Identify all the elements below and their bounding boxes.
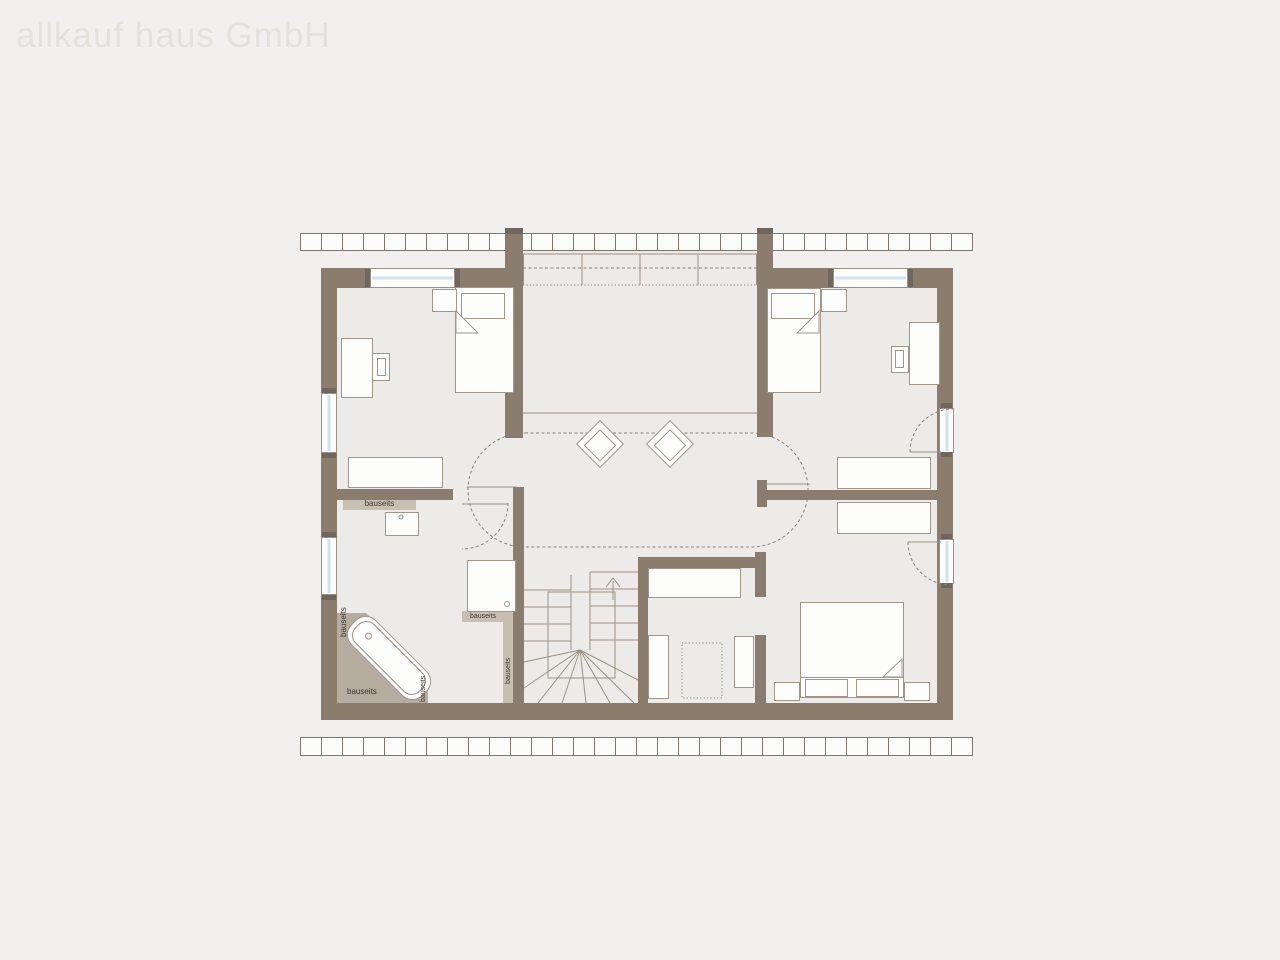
pouf-diamond-right xyxy=(647,421,694,468)
bauseits-label-shower-right: bauseits xyxy=(505,658,512,684)
bed-fold-master xyxy=(883,659,902,677)
washbasin-faucet-dot xyxy=(399,515,403,519)
door-swing-balcony-upper xyxy=(910,409,953,452)
bed-fold-right-room xyxy=(797,311,819,333)
shower-drain-dot xyxy=(505,602,510,607)
plan-overlay-graphics xyxy=(0,0,1280,960)
bed-fold-left-room xyxy=(456,311,478,333)
wardrobe-builtin xyxy=(523,254,757,285)
floor-plan-page: allkauf haus GmbH bauseits bauseits xyxy=(0,0,1280,960)
rug-dotted xyxy=(682,643,722,698)
headroom-dashed-line xyxy=(468,433,808,547)
bauseits-label-platform-left: bauseits xyxy=(340,607,348,637)
pouf-diamond-left xyxy=(577,421,624,468)
bauseits-label-platform-bottom: bauseits xyxy=(347,688,377,696)
door-swing-balcony-lower xyxy=(908,542,951,585)
bauseits-label-platform-right: bauseits xyxy=(420,676,427,702)
staircase xyxy=(524,572,638,703)
